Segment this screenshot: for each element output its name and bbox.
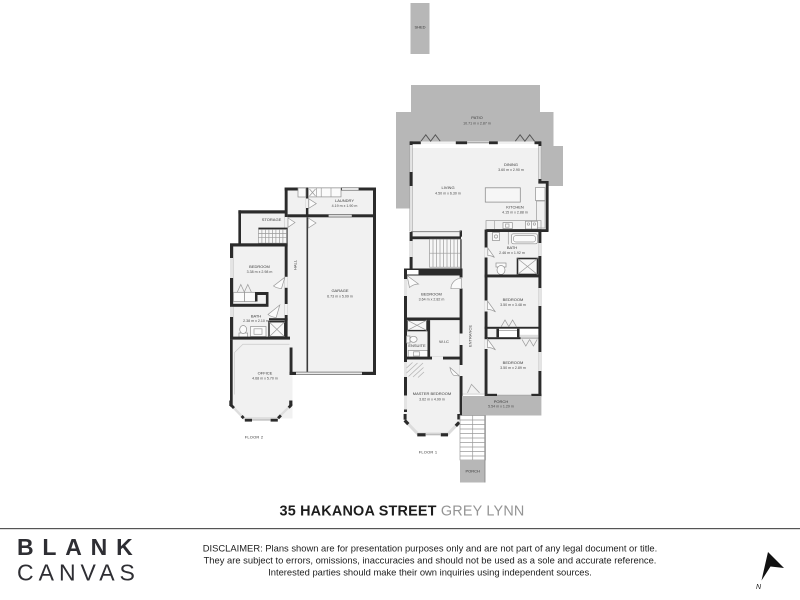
svg-text:10.71 m x 2.87 m: 10.71 m x 2.87 m bbox=[463, 122, 491, 126]
svg-text:4.15 m x 2.88 m: 4.15 m x 2.88 m bbox=[502, 211, 528, 215]
svg-text:CANVAS: CANVAS bbox=[17, 560, 140, 586]
svg-text:ENTRANCE: ENTRANCE bbox=[467, 325, 472, 347]
svg-text:2.38 m x 2.10 m: 2.38 m x 2.10 m bbox=[243, 319, 269, 323]
svg-text:GARAGE: GARAGE bbox=[331, 288, 348, 293]
svg-text:3.50 m x 3.48 m: 3.50 m x 3.48 m bbox=[500, 303, 526, 307]
svg-text:SHED: SHED bbox=[414, 25, 425, 30]
svg-text:BATH: BATH bbox=[251, 314, 261, 319]
svg-text:OFFICE: OFFICE bbox=[258, 371, 273, 376]
svg-text:W.I.C: W.I.C bbox=[439, 339, 449, 344]
svg-text:FLOOR 2: FLOOR 2 bbox=[245, 435, 264, 440]
svg-text:BATH: BATH bbox=[507, 245, 517, 250]
svg-text:ENSUITE: ENSUITE bbox=[408, 343, 426, 348]
svg-text:MASTER BEDROOM: MASTER BEDROOM bbox=[413, 391, 451, 396]
svg-text:LAUNDRY: LAUNDRY bbox=[335, 198, 354, 203]
svg-text:3.64 m x 2.82 m: 3.64 m x 2.82 m bbox=[419, 297, 445, 301]
svg-text:KITCHEN: KITCHEN bbox=[506, 205, 524, 210]
svg-text:LIVING: LIVING bbox=[441, 185, 454, 190]
svg-text:3.62 m x 4.99 m: 3.62 m x 4.99 m bbox=[419, 398, 445, 402]
svg-text:PATIO: PATIO bbox=[471, 115, 482, 120]
svg-text:4.68 m x 5.70 m: 4.68 m x 5.70 m bbox=[252, 376, 278, 380]
svg-text:6.73 m x 5.09 m: 6.73 m x 5.09 m bbox=[327, 295, 353, 299]
svg-text:They are subject to errors, om: They are subject to errors, omissions, i… bbox=[204, 555, 657, 566]
svg-text:BEDROOM: BEDROOM bbox=[421, 292, 442, 297]
svg-text:3.50 m x 2.89 m: 3.50 m x 2.89 m bbox=[500, 366, 526, 370]
svg-text:35 HAKANOA STREET GREY LYNN: 35 HAKANOA STREET GREY LYNN bbox=[279, 504, 524, 520]
svg-text:BEDROOM: BEDROOM bbox=[249, 264, 270, 269]
svg-text:3.60 m x 2.90 m: 3.60 m x 2.90 m bbox=[498, 168, 524, 172]
svg-text:PORCH: PORCH bbox=[494, 399, 509, 404]
svg-text:DINING: DINING bbox=[504, 162, 518, 167]
svg-text:Interested parties should make: Interested parties should make their own… bbox=[268, 567, 592, 578]
svg-text:FLOOR 1: FLOOR 1 bbox=[419, 450, 438, 455]
svg-text:5.54 m x 1.29 m: 5.54 m x 1.29 m bbox=[488, 405, 514, 409]
svg-text:PORCH: PORCH bbox=[465, 469, 480, 474]
svg-text:4.19 m x 1.90 m: 4.19 m x 1.90 m bbox=[332, 204, 358, 208]
svg-text:2.46 m x 1.92 m: 2.46 m x 1.92 m bbox=[499, 251, 525, 255]
svg-text:STORAGE: STORAGE bbox=[262, 217, 282, 222]
svg-text:BLANK: BLANK bbox=[17, 534, 142, 560]
svg-text:3.38 m x 2.98 m: 3.38 m x 2.98 m bbox=[247, 270, 273, 274]
svg-text:DISCLAIMER: Plans shown are fo: DISCLAIMER: Plans shown are for presenta… bbox=[203, 543, 657, 554]
svg-text:BEDROOM: BEDROOM bbox=[503, 360, 524, 365]
svg-text:HALL: HALL bbox=[293, 259, 298, 270]
svg-text:BEDROOM: BEDROOM bbox=[503, 297, 524, 302]
svg-text:4.50 m x 6.30 m: 4.50 m x 6.30 m bbox=[435, 192, 461, 196]
